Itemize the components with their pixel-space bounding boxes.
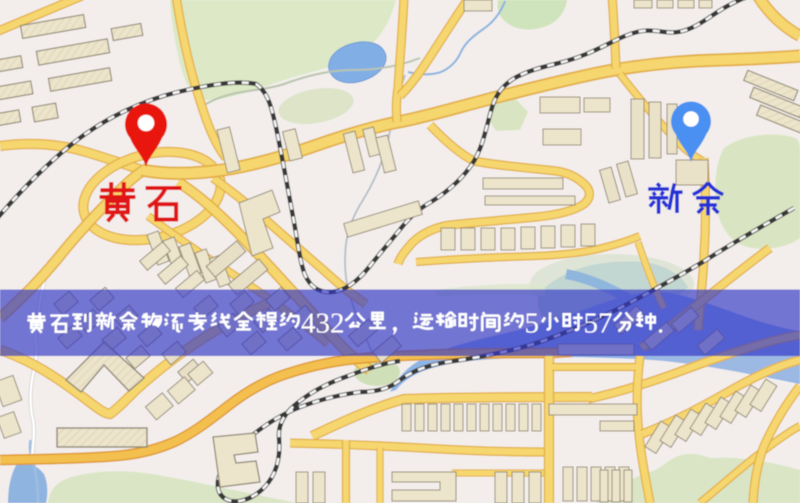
svg-text:432: 432	[301, 308, 345, 340]
svg-text:57: 57	[584, 308, 613, 340]
svg-text:.: .	[657, 308, 664, 340]
svg-text:5: 5	[525, 308, 540, 340]
